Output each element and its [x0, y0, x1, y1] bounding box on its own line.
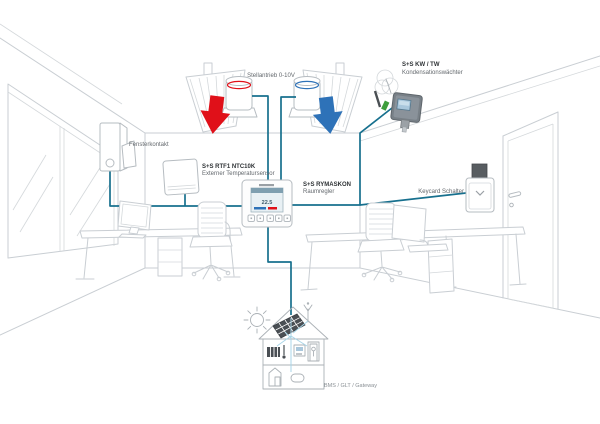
- room-outline: [0, 24, 600, 335]
- radiator-icon: [267, 347, 280, 357]
- room-automation-diagram: 22.5: [0, 0, 600, 424]
- controller-display: 22.5: [251, 188, 283, 212]
- system-diagram: 22.5: [0, 0, 600, 424]
- solar-panel-icon: [273, 314, 305, 338]
- condensation-type-label: Kondensationswächter: [402, 70, 463, 76]
- temp-sensor-type-label: Externer Temperatursensor: [202, 171, 275, 177]
- room-controller: 22.5: [242, 180, 292, 227]
- temp-sensor-name-label: S+S RTF1 NTC10K: [202, 164, 256, 170]
- keycard-label: Keycard Schalter: [418, 189, 464, 195]
- office-chair-left-icon: [190, 202, 232, 281]
- green-led-icon: [381, 101, 389, 111]
- thermometer-icon: [282, 345, 285, 359]
- heating-level-bar: [268, 207, 277, 210]
- drawer-unit: [158, 238, 182, 276]
- controller-buttons: [248, 215, 291, 222]
- building-ground-floor: [263, 365, 324, 389]
- sun-icon: [244, 307, 270, 333]
- bms-building-icon: [244, 302, 328, 389]
- bms-label: BMS / GLT / Gateway: [324, 383, 377, 389]
- heating-actuator: [221, 77, 257, 118]
- condensation-monitor: [375, 70, 423, 134]
- controller-name-label: S+S RYMASKON: [303, 182, 351, 188]
- keycard-switch: [466, 164, 494, 212]
- condensation-name-label: S+S KW / TW: [402, 62, 440, 68]
- door: [503, 112, 558, 309]
- actuator-label: Stellantrieb 0-10V: [247, 73, 295, 79]
- entrance-person-icon: [308, 342, 319, 361]
- cooling-level-bar: [254, 207, 266, 210]
- door-handle-icon: [509, 191, 521, 206]
- window-contact-label: Fensterkontakt: [129, 142, 169, 148]
- mini-controller-icon: [294, 345, 305, 356]
- gateway-icon: [291, 374, 304, 382]
- wire-bms: [268, 227, 291, 315]
- temp-sensor: [163, 159, 199, 195]
- display-temperature: 22.5: [262, 200, 273, 206]
- house-icon: [269, 368, 281, 386]
- brand-mark: [259, 184, 274, 186]
- controller-type-label: Raumregler: [303, 189, 334, 195]
- antenna-icon: [304, 302, 312, 322]
